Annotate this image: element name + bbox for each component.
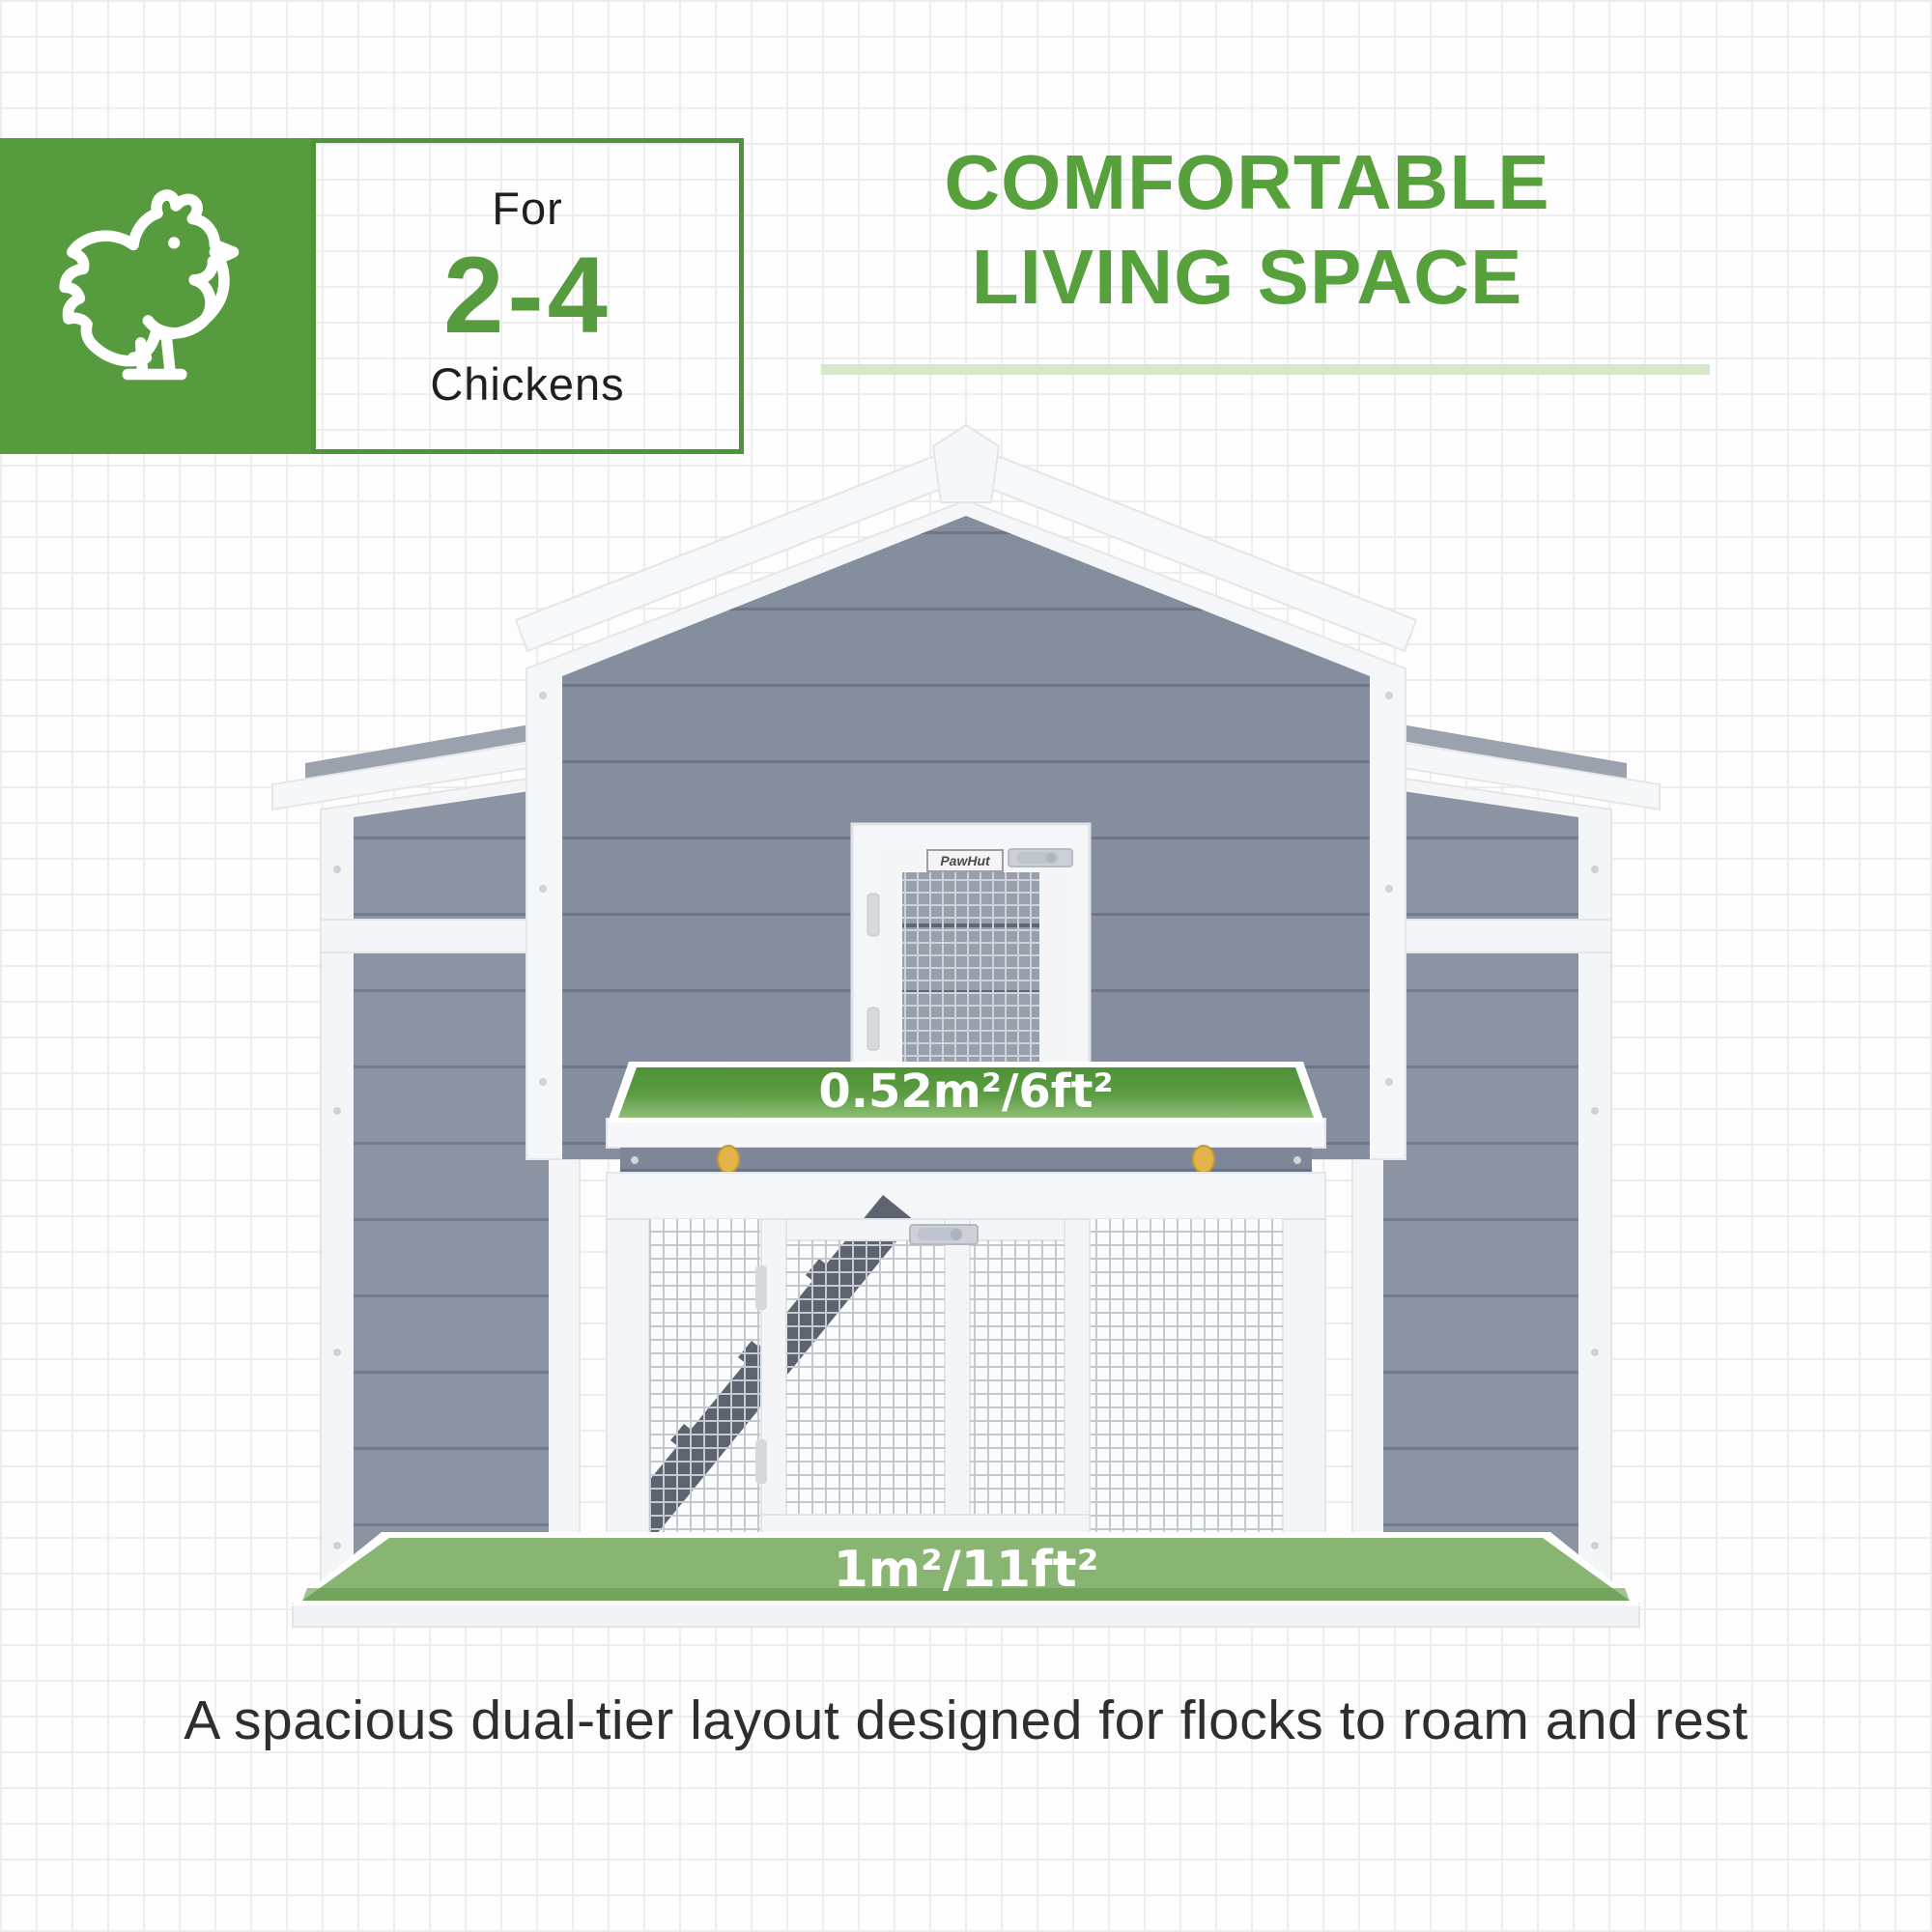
- page-title: COMFORTABLE LIVING SPACE: [856, 135, 1638, 324]
- upper-door-right-stile: [1039, 847, 1066, 1067]
- chicken-tail-feathers: [65, 236, 146, 360]
- right-wing-siding: [1383, 788, 1578, 1605]
- capacity-box: For 2-4 Chickens: [311, 138, 744, 454]
- run-post-left: [607, 1219, 649, 1538]
- page-title-line2: LIVING SPACE: [856, 230, 1638, 325]
- upper-area-label: 0.52m²/6ft²: [818, 1065, 1113, 1119]
- coop-base: [293, 1604, 1639, 1627]
- run-door-center-stile: [945, 1219, 970, 1538]
- capacity-range: 2-4: [443, 244, 611, 347]
- run-door-hinge-bottom: [755, 1439, 767, 1484]
- chicken-leg-right: [156, 339, 182, 374]
- chicken-neck: [133, 213, 157, 244]
- knob-left: [718, 1146, 739, 1173]
- run-door: [755, 1219, 1090, 1540]
- upper-door-latch: [1009, 849, 1072, 867]
- run-area: [607, 1195, 1325, 1550]
- upper-area-overlay: 0.52m²/6ft²: [608, 1062, 1324, 1122]
- run-mesh-left: [649, 1219, 761, 1538]
- upper-coop-door: PawHut: [852, 824, 1090, 1067]
- chicken-icon: [44, 175, 267, 418]
- upper-door-hinge-top: [867, 894, 879, 936]
- page-title-line1: COMFORTABLE: [856, 135, 1638, 230]
- nest-lid-screw-right: [1293, 1156, 1301, 1164]
- knob-right: [1193, 1146, 1214, 1173]
- nest-lid-board: [620, 1146, 1312, 1173]
- upper-door-mesh: [902, 872, 1039, 1067]
- coop-illustration: PawHut: [0, 415, 1932, 1671]
- run-door-mesh-left-leaf: [786, 1240, 945, 1538]
- capacity-icon-box: [0, 138, 311, 454]
- upper-door-hinge-bottom: [867, 1008, 879, 1050]
- caption-text: A spacious dual-tier layout designed for…: [0, 1689, 1932, 1752]
- lower-area-overlay: 1m²/11ft²: [291, 1532, 1641, 1605]
- lower-area-label: 1m²/11ft²: [834, 1541, 1099, 1599]
- run-door-mesh-right-leaf: [970, 1240, 1065, 1538]
- run-top-rail: [607, 1173, 1325, 1219]
- chicken-eye: [168, 237, 180, 248]
- title-underline: [821, 364, 1710, 375]
- run-mesh-right: [1090, 1219, 1283, 1538]
- brand-plaque-text: PawHut: [940, 853, 991, 868]
- run-door-right-stile: [1065, 1219, 1090, 1538]
- mid-beam: [607, 1119, 1325, 1148]
- run-door-hinge-top: [755, 1265, 767, 1310]
- run-door-latch: [910, 1225, 978, 1244]
- capacity-for-label: For: [492, 185, 563, 231]
- capacity-chickens-label: Chickens: [430, 361, 624, 407]
- nest-lid-screw-left: [631, 1156, 639, 1164]
- run-post-right: [1283, 1219, 1325, 1538]
- barn-roof-finial: [933, 425, 999, 502]
- left-wing-siding: [354, 788, 549, 1605]
